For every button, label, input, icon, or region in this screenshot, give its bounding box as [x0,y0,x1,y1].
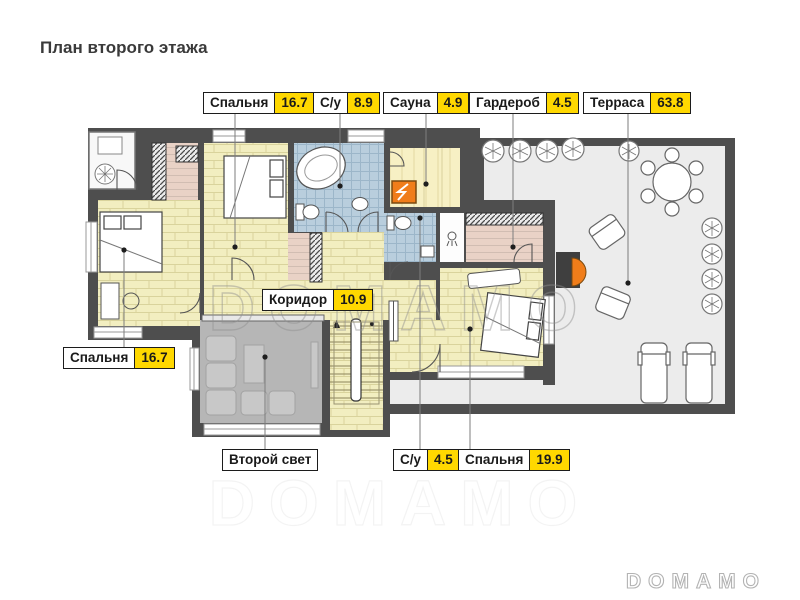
room-label: Второй свет [223,450,317,470]
room-area-value: 8.9 [347,93,379,113]
room-area-value: 19.9 [529,450,568,470]
callout-corridor: Коридор 10.9 [262,289,373,311]
room-label: Спальня [204,93,274,113]
watermark-text-faint: DOMAMO [209,467,592,539]
room-area-value: 16.7 [134,348,173,368]
floor-plan-drawing: DOMAMO DOMAMO DOMAMO [0,0,800,600]
vestibule-floor [440,213,464,262]
room-area-value: 10.9 [333,290,372,310]
callout-bathroom-bottom: С/у 4.5 [393,449,460,471]
callout-bedroom-bottom: Спальня 19.9 [458,449,570,471]
callout-wardrobe: Гардероб 4.5 [469,92,579,114]
room-label: Терраса [584,93,650,113]
callout-bedroom-top: Спальня 16.7 [203,92,315,114]
room-label: Гардероб [470,93,546,113]
room-label: Спальня [64,348,134,368]
washbasin [421,246,434,257]
room-area-value: 16.7 [274,93,313,113]
callout-second-light: Второй свет [222,449,318,471]
callout-bedroom-left: Спальня 16.7 [63,347,175,369]
balcony [89,132,135,189]
bed-top [224,156,286,218]
room-area-value: 4.9 [437,93,469,113]
room-area-value: 4.5 [546,93,578,113]
callout-sauna: Сауна 4.9 [383,92,469,114]
bidet [352,198,368,211]
brand-logo: DOMAMO [626,570,766,593]
room-label: С/у [314,93,347,113]
bed-left [100,212,162,272]
room-label: Сауна [384,93,437,113]
toilet-bottom [387,216,411,230]
room-label: С/у [394,450,427,470]
room-area-value: 63.8 [650,93,689,113]
room-label: Коридор [263,290,333,310]
sauna-stove [392,181,416,203]
room-area-value: 4.5 [427,450,459,470]
room-label: Спальня [459,450,529,470]
callout-terrace: Терраса 63.8 [583,92,691,114]
toilet-top [296,204,319,220]
callout-bathroom-top: С/у 8.9 [313,92,380,114]
